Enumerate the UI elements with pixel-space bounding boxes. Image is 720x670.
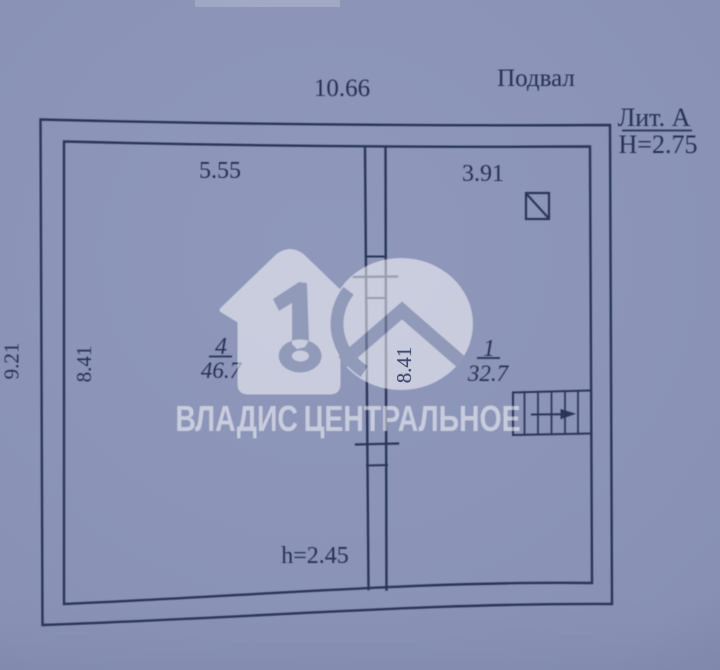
svg-text:Подвал: Подвал: [497, 65, 575, 92]
svg-text:8.41: 8.41: [72, 346, 96, 383]
svg-text:9.21: 9.21: [0, 343, 24, 380]
svg-text:32.7: 32.7: [467, 361, 510, 386]
svg-text:ВЛАДИС ЦЕНТРАЛЬНОЕ: ВЛАДИС ЦЕНТРАЛЬНОЕ: [175, 399, 520, 439]
svg-text:46.7: 46.7: [201, 358, 243, 383]
svg-text:h=2.45: h=2.45: [281, 543, 349, 569]
svg-text:10.66: 10.66: [314, 75, 370, 102]
svg-text:5.55: 5.55: [199, 158, 241, 184]
svg-text:8.41: 8.41: [392, 347, 416, 384]
svg-text:3.91: 3.91: [462, 161, 504, 187]
svg-text:Н=2.75: Н=2.75: [619, 130, 698, 159]
svg-text:Лит. А: Лит. А: [618, 103, 691, 132]
